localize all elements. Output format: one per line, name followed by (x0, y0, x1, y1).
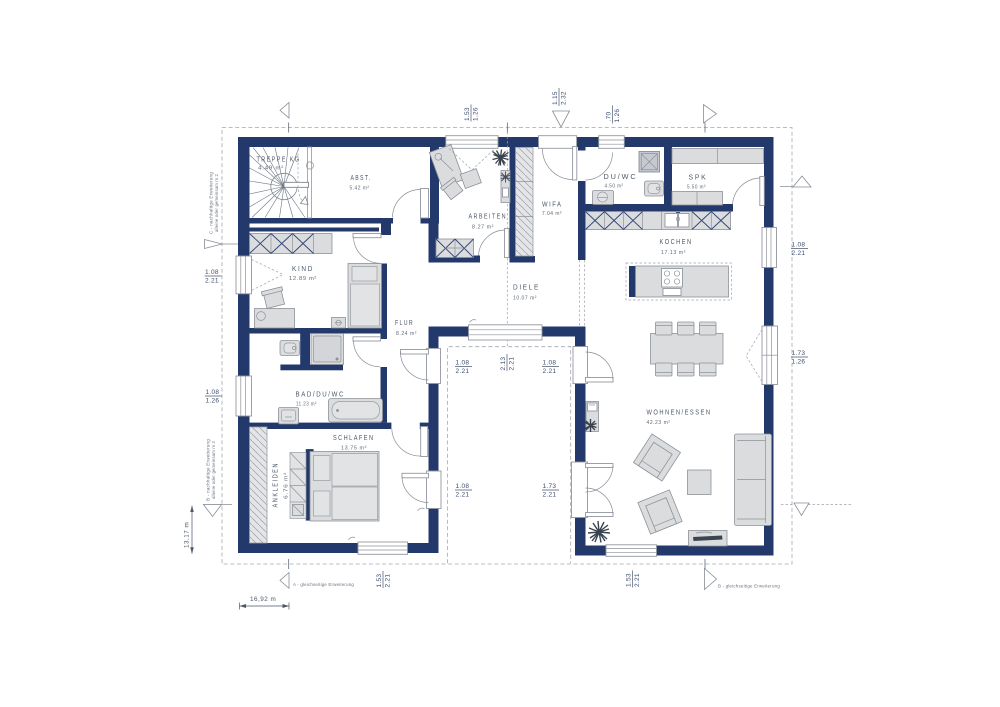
svg-text:4.50 m²: 4.50 m² (605, 184, 624, 190)
svg-text:13.75 m²: 13.75 m² (341, 446, 367, 452)
svg-text:KIND: KIND (292, 264, 314, 273)
svg-text:7.04 m²: 7.04 m² (542, 211, 562, 217)
svg-text:17.13 m²: 17.13 m² (661, 250, 686, 256)
svg-text:ANKLEIDEN: ANKLEIDEN (271, 462, 280, 508)
svg-text:12.89 m²: 12.89 m² (289, 276, 317, 282)
svg-text:1.73: 1.73 (543, 483, 557, 490)
svg-text:1.08: 1.08 (543, 359, 557, 366)
svg-text:KOCHEN: KOCHEN (660, 237, 693, 246)
svg-text:1.08: 1.08 (205, 269, 219, 276)
svg-text:1.26: 1.26 (206, 398, 220, 405)
svg-text:1.08: 1.08 (792, 241, 806, 248)
svg-text:13,17 m: 13,17 m (184, 522, 191, 548)
svg-text:2.32: 2.32 (561, 91, 568, 105)
svg-text:.70: .70 (605, 111, 612, 121)
svg-text:1.26: 1.26 (614, 109, 621, 123)
svg-text:1.73: 1.73 (792, 350, 806, 357)
svg-text:2.21: 2.21 (792, 250, 806, 257)
svg-text:5.42 m²: 5.42 m² (350, 186, 370, 192)
svg-text:SCHLAFEN: SCHLAFEN (333, 433, 375, 442)
svg-text:WIFA: WIFA (542, 200, 563, 209)
svg-text:C - nachhaltige Erweiterung: C - nachhaltige Erweiterung (209, 172, 214, 234)
svg-text:BAD/DU/WC: BAD/DU/WC (296, 390, 346, 399)
svg-text:16,92 m: 16,92 m (250, 596, 276, 603)
svg-text:2.21: 2.21 (456, 368, 470, 375)
svg-text:2.21: 2.21 (543, 368, 557, 375)
svg-text:DIELE: DIELE (513, 283, 540, 292)
svg-text:6.76 m²: 6.76 m² (284, 472, 290, 499)
svg-text:alleine oder gemeinsam m 2: alleine oder gemeinsam m 2 (214, 174, 219, 232)
svg-text:1.53: 1.53 (625, 573, 632, 587)
svg-text:2.21: 2.21 (205, 278, 219, 285)
svg-text:B - nachhaltige Erweiterung: B - nachhaltige Erweiterung (206, 439, 211, 501)
svg-text:1.15: 1.15 (552, 91, 559, 105)
svg-text:5.50 m²: 5.50 m² (687, 185, 706, 191)
svg-text:2.13: 2.13 (500, 357, 507, 371)
svg-text:2.21: 2.21 (509, 357, 516, 371)
svg-text:1.08: 1.08 (206, 389, 220, 396)
svg-text:1.53: 1.53 (464, 107, 471, 121)
svg-text:TREPPE KG: TREPPE KG (257, 155, 301, 164)
svg-text:FLUR: FLUR (395, 318, 414, 327)
svg-text:A - gleichseitige Erweiterung: A - gleichseitige Erweiterung (293, 582, 354, 587)
svg-text:ARBEITEN: ARBEITEN (469, 212, 508, 221)
svg-text:1.26: 1.26 (473, 107, 480, 121)
svg-text:SPK: SPK (689, 173, 708, 182)
svg-text:2.21: 2.21 (543, 492, 557, 499)
svg-text:2.21: 2.21 (634, 573, 641, 587)
svg-text:8.24 m²: 8.24 m² (396, 331, 417, 337)
svg-text:4.49 m²: 4.49 m² (258, 166, 284, 172)
svg-text:ABST.: ABST. (351, 173, 372, 182)
svg-text:11.23 m²: 11.23 m² (296, 402, 317, 408)
svg-text:42.23 m²: 42.23 m² (647, 420, 671, 426)
svg-text:B - gleichseitige Erweiterung: B - gleichseitige Erweiterung (718, 584, 780, 589)
svg-text:10.07 m²: 10.07 m² (513, 296, 537, 302)
svg-text:WOHNEN/ESSEN: WOHNEN/ESSEN (647, 408, 712, 417)
svg-text:1.26: 1.26 (792, 359, 806, 366)
svg-text:1.08: 1.08 (456, 359, 470, 366)
svg-text:2.21: 2.21 (456, 492, 470, 499)
svg-text:8.27 m²: 8.27 m² (472, 225, 494, 231)
svg-text:DU/WC: DU/WC (604, 172, 638, 181)
svg-text:alleine oder gemeinsam m 2: alleine oder gemeinsam m 2 (211, 441, 216, 499)
svg-text:1.53: 1.53 (376, 574, 383, 588)
svg-text:1.08: 1.08 (456, 483, 470, 490)
svg-text:2.21: 2.21 (385, 574, 392, 588)
